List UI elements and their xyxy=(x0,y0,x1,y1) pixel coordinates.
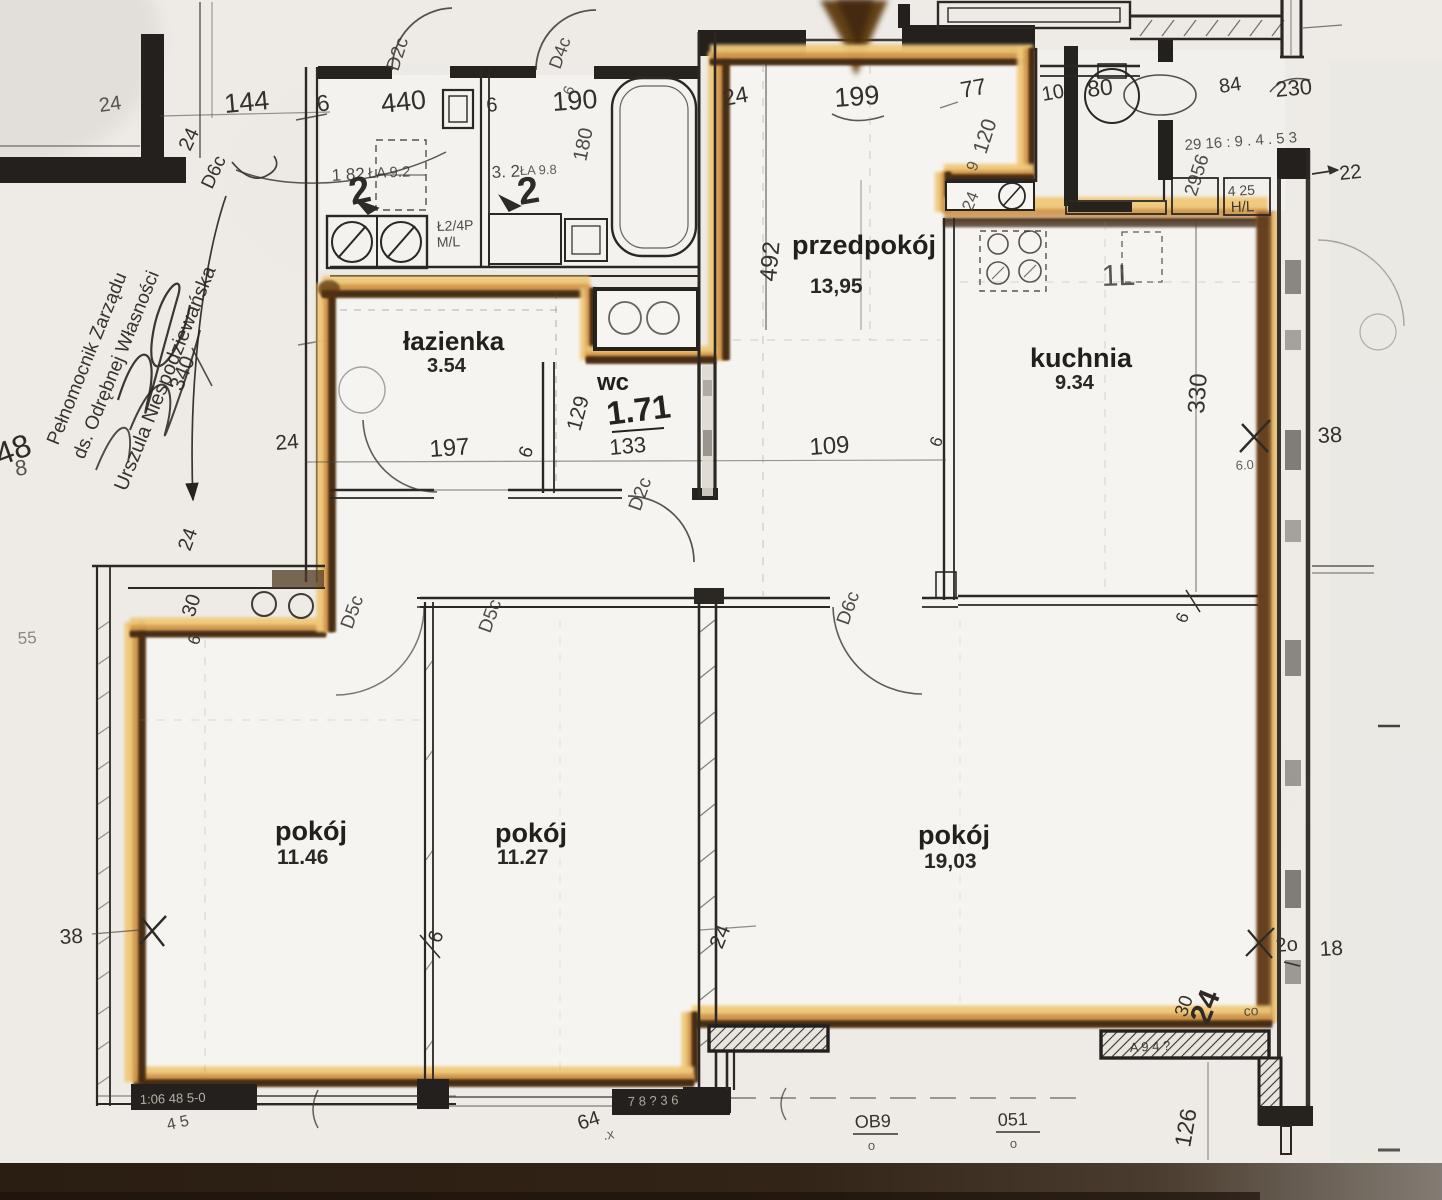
svg-text:o: o xyxy=(868,1138,876,1153)
svg-text:6.0: 6.0 xyxy=(1235,457,1254,473)
svg-text:492: 492 xyxy=(755,240,785,282)
svg-text:11.27: 11.27 xyxy=(497,846,548,869)
svg-text:H/L: H/L xyxy=(1231,198,1255,216)
svg-text:197: 197 xyxy=(429,433,471,463)
svg-text:11.46: 11.46 xyxy=(277,846,328,869)
svg-text:133: 133 xyxy=(608,432,647,460)
svg-text:pokój: pokój xyxy=(918,820,990,850)
svg-text:84: 84 xyxy=(1218,73,1243,98)
svg-text:1:06 48 5-0: 1:06 48 5-0 xyxy=(140,1090,206,1107)
svg-text:13,95: 13,95 xyxy=(810,275,863,298)
svg-text:77: 77 xyxy=(958,73,988,103)
svg-text:7 8 ? 3 6: 7 8 ? 3 6 xyxy=(628,1092,679,1109)
svg-text:A 9 4 ?: A 9 4 ? xyxy=(1129,1038,1170,1055)
svg-text:co: co xyxy=(1243,1002,1259,1019)
svg-text:051: 051 xyxy=(997,1109,1028,1130)
svg-text:9.34: 9.34 xyxy=(1055,372,1095,394)
svg-text:24: 24 xyxy=(274,430,300,455)
svg-text:pokój: pokój xyxy=(275,816,347,846)
svg-text:10: 10 xyxy=(1040,80,1066,106)
svg-text:Ł2/4P: Ł2/4P xyxy=(437,217,474,234)
svg-text:pokój: pokój xyxy=(495,818,567,848)
svg-text:38: 38 xyxy=(1317,422,1343,448)
svg-text:kuchnia: kuchnia xyxy=(1030,343,1133,373)
svg-text:4 25: 4 25 xyxy=(1227,182,1255,199)
svg-text:55: 55 xyxy=(17,628,37,648)
svg-text:3.54: 3.54 xyxy=(427,355,467,377)
svg-text:24: 24 xyxy=(98,92,123,117)
svg-text:łazienka: łazienka xyxy=(403,326,505,356)
svg-text:330: 330 xyxy=(1183,373,1213,415)
svg-text:190: 190 xyxy=(551,84,598,117)
svg-text:199: 199 xyxy=(833,80,880,113)
svg-text:24: 24 xyxy=(720,81,750,111)
svg-text:6: 6 xyxy=(485,94,498,117)
svg-text:22: 22 xyxy=(1338,161,1362,185)
svg-text:o: o xyxy=(1010,1136,1018,1151)
svg-text:OB9: OB9 xyxy=(854,1111,891,1132)
svg-text:przedpokój: przedpokój xyxy=(792,230,936,260)
svg-text:M/L: M/L xyxy=(437,233,461,250)
svg-text:80: 80 xyxy=(1086,73,1114,102)
svg-text:1.71: 1.71 xyxy=(604,387,672,432)
svg-text:19,03: 19,03 xyxy=(924,850,977,873)
svg-text:440: 440 xyxy=(379,84,427,119)
svg-text:38: 38 xyxy=(59,925,84,949)
svg-text:109: 109 xyxy=(809,431,851,461)
svg-text:18: 18 xyxy=(1319,937,1344,961)
svg-text:2o: 2o xyxy=(1275,933,1299,956)
svg-text:1L: 1L xyxy=(1101,259,1136,293)
